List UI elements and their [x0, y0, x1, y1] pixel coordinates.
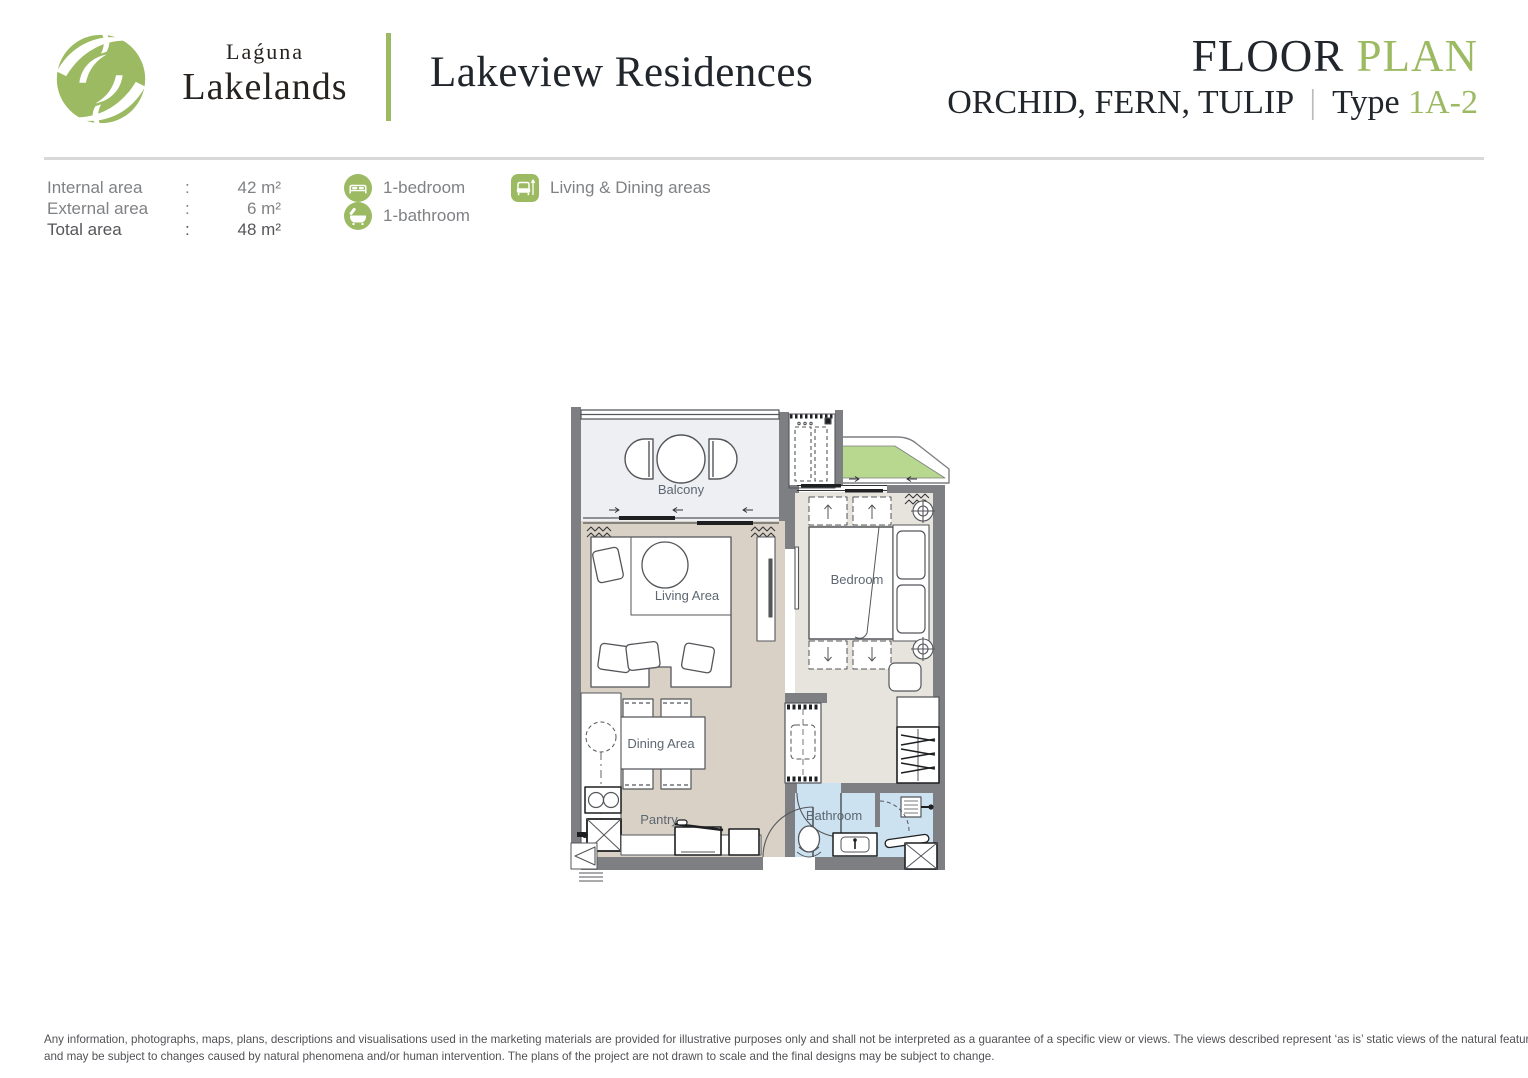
- floorplan-title-block: FLOOR PLAN ORCHID, FERN, TULIP | Type 1A…: [947, 30, 1478, 124]
- legend-bathroom: 1-bathroom: [344, 202, 470, 230]
- area-colon: :: [185, 219, 199, 240]
- room-label-pantry: Pantry: [640, 812, 678, 827]
- kitchen-counter: [577, 693, 621, 851]
- legend-bedroom: 1-bedroom: [344, 174, 465, 202]
- area-summary: Internal area : 42 m² External area : 6 …: [47, 177, 281, 240]
- vanity-sink: [833, 833, 877, 856]
- legend-bathroom-label: 1-bathroom: [383, 206, 470, 226]
- legend-living-dining: Living & Dining areas: [511, 174, 711, 202]
- entry-opening: [763, 857, 815, 870]
- room-label-bathroom: Bathroom: [806, 808, 862, 823]
- area-row-external: External area : 6 m²: [47, 198, 281, 219]
- coffee-table: [642, 542, 688, 588]
- area-value: 6 m²: [199, 198, 281, 219]
- room-label-balcony: Balcony: [658, 482, 705, 497]
- nightstand: [889, 663, 921, 691]
- cabinet-box: [729, 829, 759, 855]
- area-colon: :: [185, 177, 199, 198]
- header-vertical-divider: [386, 33, 391, 121]
- disclaimer-line-2: and may be subject to changes caused by …: [44, 1048, 1499, 1065]
- brand-name-top: Laǵuna: [160, 40, 370, 64]
- logo-swirl-icon: [57, 29, 145, 129]
- balcony-table-and-chairs: [625, 435, 737, 483]
- page-title: FLOOR PLAN: [947, 30, 1478, 82]
- wardrobe: [897, 697, 939, 783]
- shaft: [905, 843, 937, 869]
- bedroom-tv-panel: [795, 547, 799, 609]
- planter: [837, 437, 949, 483]
- project-title: Lakeview Residences: [430, 48, 813, 97]
- page-subtitle: ORCHID, FERN, TULIP | Type 1A-2: [947, 82, 1478, 124]
- floor-plan: Balcony Living Area Dining Area Pantry B…: [557, 397, 967, 907]
- laguna-lakelands-logo: [54, 26, 148, 132]
- room-label-living: Living Area: [655, 588, 720, 603]
- subtitle-type-label: Type: [1332, 84, 1400, 121]
- bed-icon: [344, 174, 372, 202]
- brand-name-bottom: Lakelands: [160, 66, 370, 108]
- utility-closet-floor: [789, 414, 835, 488]
- legend-living-dining-label: Living & Dining areas: [550, 178, 711, 198]
- area-label: Internal area: [47, 177, 185, 198]
- stove: [585, 787, 621, 813]
- area-colon: :: [185, 198, 199, 219]
- room-label-dining: Dining Area: [627, 736, 695, 751]
- room-label-bedroom: Bedroom: [831, 572, 884, 587]
- disclaimer-line-1: Any information, photographs, maps, plan…: [44, 1031, 1499, 1048]
- area-value: 48 m²: [199, 219, 281, 240]
- area-label: Total area: [47, 219, 185, 240]
- sofa-icon: [511, 174, 539, 202]
- bathtub-icon: [344, 202, 372, 230]
- area-value: 42 m²: [199, 177, 281, 198]
- subtitle-units: ORCHID, FERN, TULIP: [947, 84, 1293, 121]
- brand-wordmark: Laǵuna Lakelands: [160, 40, 370, 108]
- subtitle-type-code: 1A-2: [1408, 84, 1478, 121]
- subtitle-divider: |: [1301, 84, 1324, 121]
- area-row-internal: Internal area : 42 m²: [47, 177, 281, 198]
- disclaimer: Any information, photographs, maps, plan…: [44, 1031, 1499, 1065]
- legend-bedroom-label: 1-bedroom: [383, 178, 465, 198]
- header-rule: [44, 157, 1484, 160]
- area-label: External area: [47, 198, 185, 219]
- balcony-railing: [581, 410, 779, 419]
- page-title-green: PLAN: [1356, 31, 1478, 81]
- page-title-dark: FLOOR: [1192, 31, 1345, 81]
- fridge-closet: [785, 703, 821, 783]
- bathroom-door-opening: [797, 783, 841, 793]
- area-row-total: Total area : 48 m²: [47, 219, 281, 240]
- tv-console: [757, 537, 775, 641]
